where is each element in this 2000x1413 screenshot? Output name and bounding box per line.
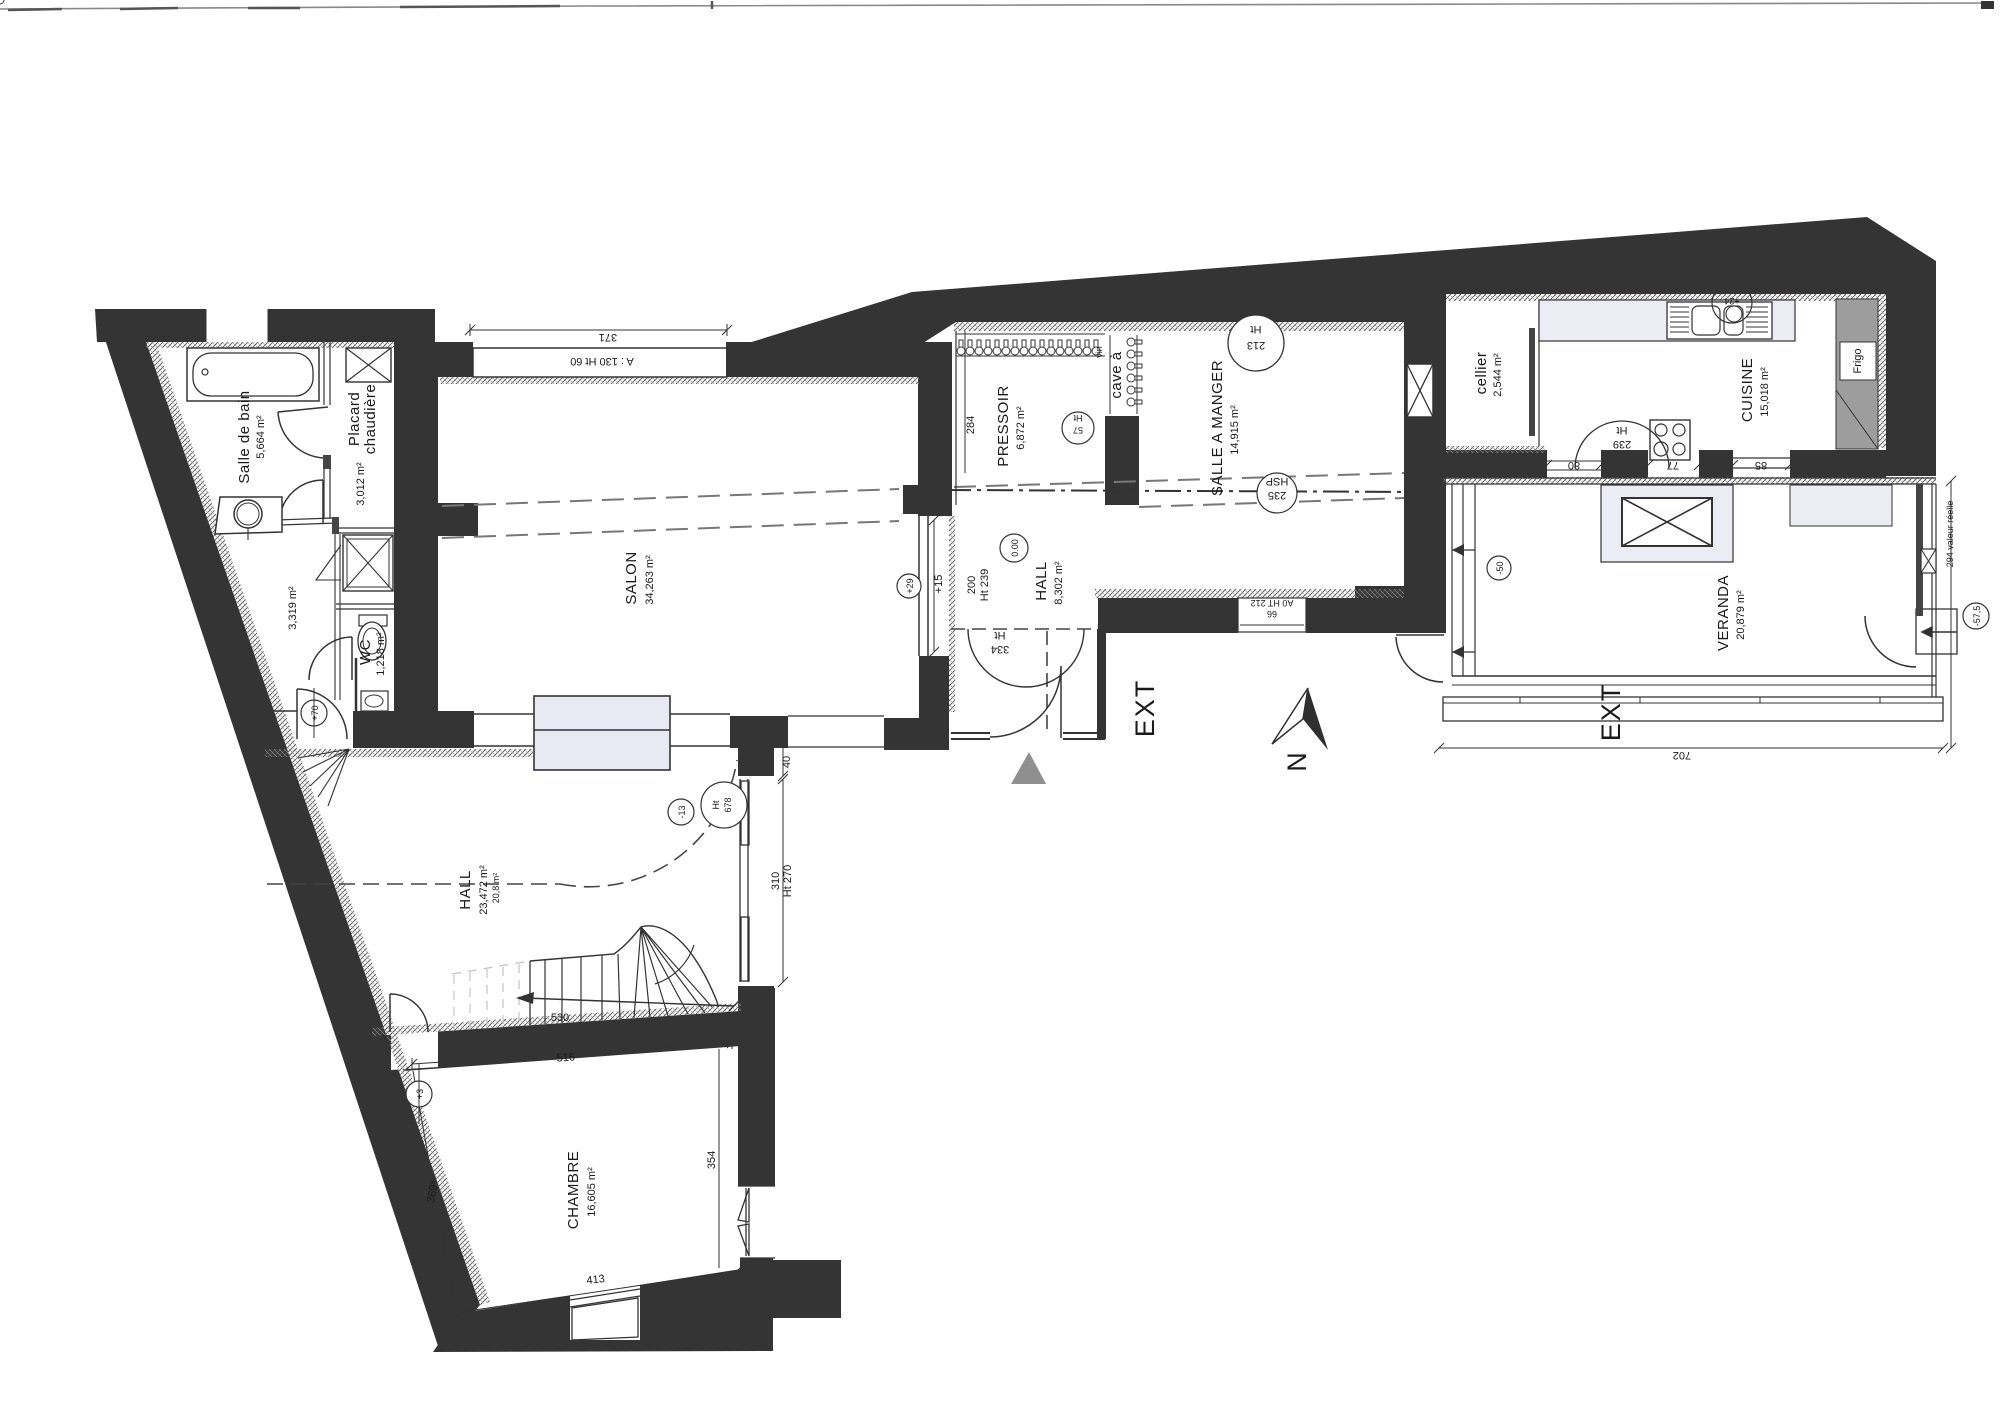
svg-text:vin: vin — [1094, 346, 1104, 358]
svg-text:354: 354 — [706, 1151, 718, 1169]
svg-text:20,8 m²: 20,8 m² — [491, 873, 501, 904]
svg-text:+70: +70 — [310, 705, 320, 720]
svg-text:77: 77 — [1667, 459, 1679, 471]
svg-text:413: 413 — [586, 1273, 606, 1287]
svg-text:294 valeur réelle: 294 valeur réelle — [1945, 501, 1955, 568]
svg-text:334: 334 — [991, 643, 1009, 655]
svg-text:CUISINE: CUISINE — [1739, 358, 1756, 422]
svg-text:14,915 m²: 14,915 m² — [1229, 405, 1241, 455]
svg-text:-57,5: -57,5 — [1972, 606, 1982, 627]
svg-text:N: N — [1282, 750, 1312, 772]
svg-text:-13: -13 — [677, 805, 687, 818]
svg-text:34,263 m²: 34,263 m² — [644, 555, 656, 605]
svg-text:6,872 m²: 6,872 m² — [1015, 406, 1027, 450]
svg-text:VERANDA: VERANDA — [1715, 575, 1732, 651]
svg-text:HSP: HSP — [1266, 475, 1289, 487]
svg-text:Placard: Placard — [346, 392, 363, 446]
svg-text:23,472 m²: 23,472 m² — [478, 865, 490, 915]
svg-text:Salle de bain: Salle de bain — [236, 390, 253, 483]
svg-text:3,012 m²: 3,012 m² — [355, 462, 367, 506]
svg-text:+29: +29 — [905, 578, 915, 593]
svg-text:cellier: cellier — [1473, 352, 1490, 395]
svg-text:235: 235 — [1268, 489, 1286, 501]
svg-text:2,544 m²: 2,544 m² — [1492, 353, 1504, 397]
svg-text:+15: +15 — [933, 575, 945, 594]
svg-text:Frigo: Frigo — [1852, 348, 1864, 373]
svg-text:EXT: EXT — [1130, 679, 1160, 738]
svg-text:Ht: Ht — [1617, 424, 1628, 436]
svg-text:Ht: Ht — [995, 629, 1006, 641]
svg-text:Ht 270: Ht 270 — [782, 865, 794, 897]
svg-text:EXT: EXT — [1596, 683, 1626, 742]
svg-text:3,319 m²: 3,319 m² — [287, 586, 299, 630]
svg-text:Ht 239: Ht 239 — [979, 569, 991, 601]
svg-text:CHAMBRE: CHAMBRE — [565, 1151, 582, 1230]
svg-text:80: 80 — [1568, 459, 1580, 471]
svg-text:1,218 m²: 1,218 m² — [375, 632, 387, 676]
svg-text:16,605 m²: 16,605 m² — [586, 1167, 598, 1217]
svg-text:HALL: HALL — [1033, 561, 1050, 601]
svg-text:+24: +24 — [1724, 296, 1739, 306]
svg-text:HALL: HALL — [457, 870, 474, 910]
svg-text:cave à: cave à — [1108, 351, 1125, 398]
svg-text:57: 57 — [1073, 425, 1083, 435]
svg-text:Ht: Ht — [1073, 413, 1082, 423]
svg-text:530: 530 — [551, 1012, 569, 1024]
svg-text:310: 310 — [770, 872, 782, 890]
svg-text:+3: +3 — [415, 1089, 425, 1099]
svg-text:702: 702 — [1673, 749, 1691, 761]
svg-text:PRESSOIR: PRESSOIR — [995, 385, 1012, 467]
svg-text:40: 40 — [781, 756, 793, 768]
svg-text:15,018 m²: 15,018 m² — [1759, 367, 1771, 417]
svg-text:85: 85 — [1755, 459, 1767, 471]
svg-text:A0 HT 212: A0 HT 212 — [1251, 598, 1294, 608]
svg-text:A : 130 Ht 60: A : 130 Ht 60 — [570, 355, 634, 367]
svg-text:5,664 m²: 5,664 m² — [255, 415, 267, 459]
svg-text:SALLE A MANGER: SALLE A MANGER — [1209, 360, 1226, 496]
svg-text:0.00: 0.00 — [1010, 539, 1020, 557]
svg-text:516: 516 — [556, 1051, 575, 1064]
svg-text:284: 284 — [965, 416, 977, 434]
svg-text:213: 213 — [1247, 339, 1265, 351]
svg-text:-50: -50 — [1495, 561, 1505, 574]
svg-text:200: 200 — [966, 576, 978, 594]
svg-text:239: 239 — [1613, 438, 1631, 450]
svg-text:678: 678 — [723, 797, 733, 812]
svg-text:8,302 m²: 8,302 m² — [1053, 561, 1065, 605]
svg-text:371: 371 — [599, 331, 617, 343]
svg-text:Ht: Ht — [711, 800, 721, 809]
svg-text:SALON: SALON — [623, 551, 640, 604]
svg-text:66: 66 — [1267, 609, 1277, 619]
svg-text:chaudière: chaudière — [362, 384, 379, 454]
svg-text:20,879 m²: 20,879 m² — [1735, 590, 1747, 640]
svg-text:WC: WC — [357, 639, 374, 665]
svg-text:Ht: Ht — [1251, 323, 1262, 335]
